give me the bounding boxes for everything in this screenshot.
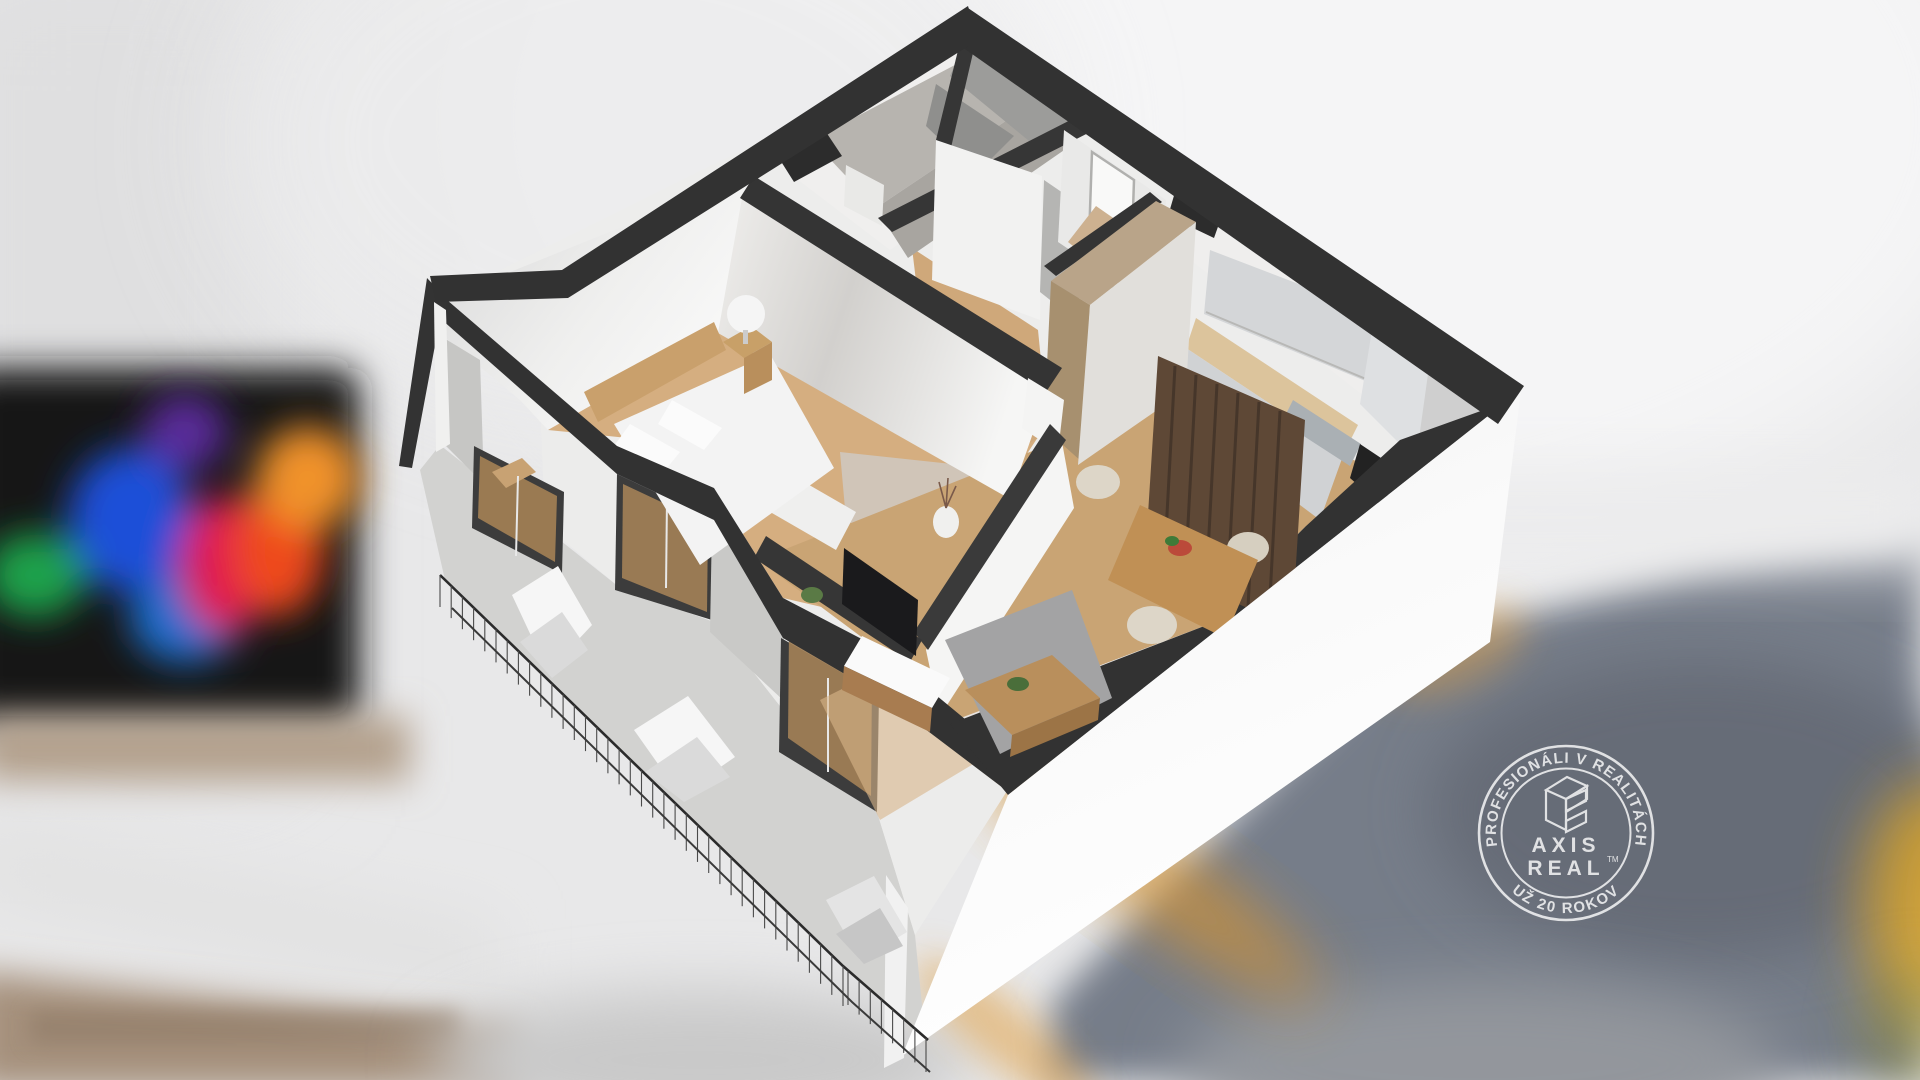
svg-text:TM: TM: [1607, 855, 1619, 864]
svg-text:AXIS: AXIS: [1531, 834, 1600, 857]
svg-text:REAL: REAL: [1527, 857, 1604, 880]
